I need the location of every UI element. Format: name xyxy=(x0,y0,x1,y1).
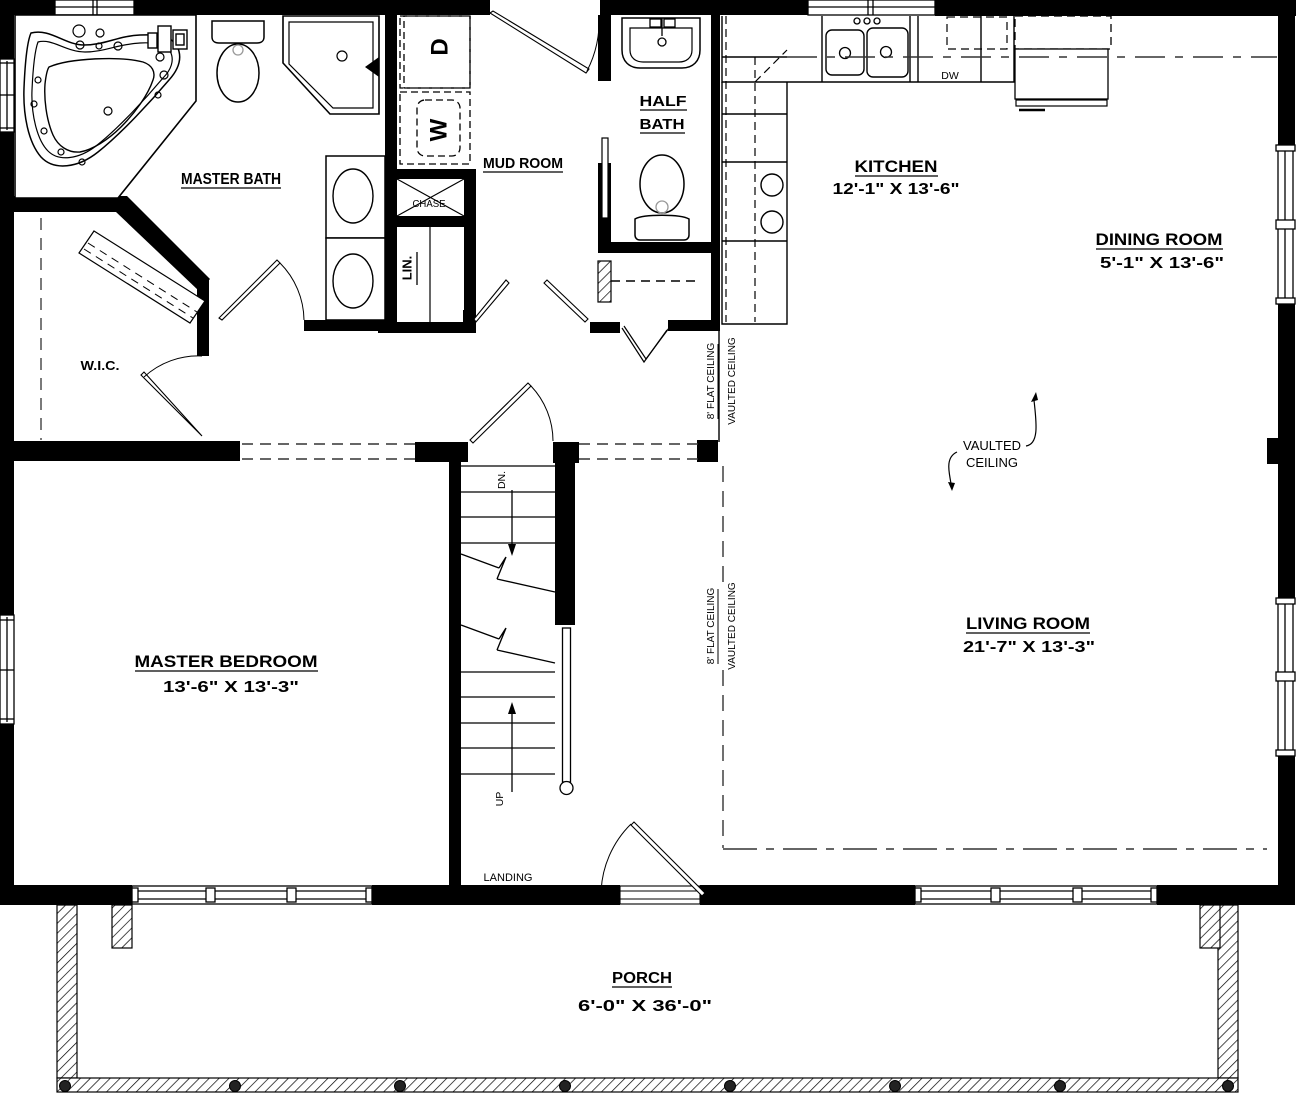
svg-text:5'-1" X 13'-6": 5'-1" X 13'-6" xyxy=(1100,255,1224,272)
svg-text:VAULTED: VAULTED xyxy=(963,438,1021,453)
svg-text:VAULTED CEILING: VAULTED CEILING xyxy=(727,582,738,670)
svg-text:MASTER BEDROOM: MASTER BEDROOM xyxy=(135,652,318,671)
svg-text:LIN.: LIN. xyxy=(399,256,414,281)
svg-text:13'-6" X 13'-3": 13'-6" X 13'-3" xyxy=(163,679,299,696)
svg-text:HALF: HALF xyxy=(640,93,687,110)
svg-text:VAULTED CEILING: VAULTED CEILING xyxy=(727,337,738,425)
svg-text:CHASE: CHASE xyxy=(413,198,446,210)
svg-text:8' FLAT CEILING: 8' FLAT CEILING xyxy=(706,587,717,664)
svg-text:MUD ROOM: MUD ROOM xyxy=(483,155,563,172)
svg-text:BATH: BATH xyxy=(640,116,685,133)
svg-text:8' FLAT CEILING: 8' FLAT CEILING xyxy=(706,342,717,419)
svg-text:21'-7" X 13'-3": 21'-7" X 13'-3" xyxy=(963,639,1095,656)
svg-text:W: W xyxy=(425,118,452,141)
svg-text:D: D xyxy=(426,38,453,55)
svg-text:6'-0" X 36'-0": 6'-0" X 36'-0" xyxy=(578,998,712,1015)
svg-text:PORCH: PORCH xyxy=(612,970,672,987)
svg-text:KITCHEN: KITCHEN xyxy=(855,157,938,176)
svg-text:12'-1" X 13'-6": 12'-1" X 13'-6" xyxy=(833,181,960,198)
svg-text:W.I.C.: W.I.C. xyxy=(81,358,120,373)
svg-text:LIVING ROOM: LIVING ROOM xyxy=(966,614,1090,633)
svg-text:DN.: DN. xyxy=(496,471,508,489)
svg-text:MASTER BATH: MASTER BATH xyxy=(181,171,281,188)
svg-text:CEILING: CEILING xyxy=(966,455,1018,470)
svg-text:DINING ROOM: DINING ROOM xyxy=(1096,230,1223,249)
svg-text:UP: UP xyxy=(494,792,506,807)
svg-text:LANDING: LANDING xyxy=(484,872,533,884)
svg-text:DW: DW xyxy=(941,70,959,82)
